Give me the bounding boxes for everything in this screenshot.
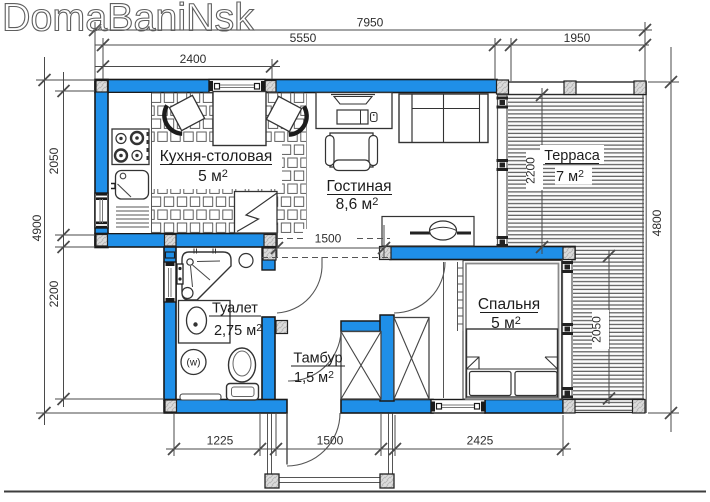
svg-text:Туалет: Туалет [212, 301, 258, 317]
svg-text:2,75 м2: 2,75 м2 [214, 322, 262, 339]
svg-text:7950: 7950 [357, 16, 384, 30]
svg-text:2200: 2200 [524, 157, 538, 184]
svg-text:Терраса: Терраса [544, 148, 601, 164]
svg-text:4900: 4900 [30, 214, 44, 241]
svg-text:1500: 1500 [315, 232, 342, 246]
svg-text:4800: 4800 [650, 209, 664, 236]
svg-text:Спальня: Спальня [478, 296, 540, 313]
svg-text:Кухня-столовая: Кухня-столовая [160, 148, 273, 165]
svg-text:(w): (w) [187, 358, 201, 369]
svg-text:2050: 2050 [590, 316, 604, 343]
svg-text:8,6 м2: 8,6 м2 [336, 196, 379, 213]
svg-text:2200: 2200 [47, 280, 61, 307]
svg-text:DomaBaniNsk: DomaBaniNsk [2, 0, 254, 40]
svg-text:Тамбур: Тамбур [293, 351, 342, 367]
svg-text:1,5 м2: 1,5 м2 [294, 369, 334, 386]
svg-text:1225: 1225 [207, 434, 234, 448]
svg-text:5550: 5550 [290, 31, 317, 45]
svg-text:2050: 2050 [47, 147, 61, 174]
svg-text:1950: 1950 [564, 31, 591, 45]
svg-text:2425: 2425 [467, 434, 494, 448]
svg-text:2400: 2400 [180, 52, 207, 66]
svg-text:Гостиная: Гостиная [326, 178, 391, 195]
svg-text:1500: 1500 [317, 434, 344, 448]
